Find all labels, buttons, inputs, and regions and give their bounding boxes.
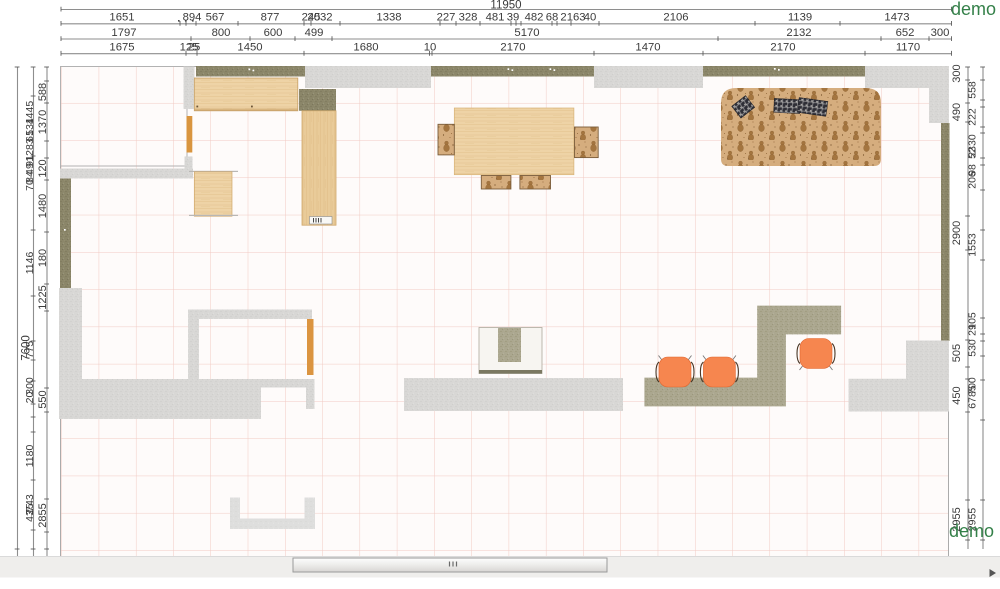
svg-text:52: 52	[967, 147, 979, 159]
svg-text:2106: 2106	[663, 12, 688, 24]
svg-text:2170: 2170	[770, 41, 795, 53]
svg-text:2132: 2132	[786, 27, 811, 39]
svg-text:29: 29	[967, 324, 979, 336]
svg-text:1473: 1473	[884, 12, 909, 24]
svg-text:1651: 1651	[109, 12, 134, 24]
svg-text:demo: demo	[951, 0, 996, 19]
svg-text:1225: 1225	[37, 285, 49, 309]
svg-text:894: 894	[183, 12, 202, 24]
svg-text:800: 800	[212, 27, 231, 39]
svg-text:1146: 1146	[24, 252, 36, 275]
svg-text:877: 877	[261, 12, 280, 24]
svg-text:180: 180	[37, 249, 49, 267]
svg-text:demo: demo	[949, 521, 994, 541]
svg-text:567: 567	[206, 12, 225, 24]
svg-text:1470: 1470	[635, 41, 660, 53]
svg-text:558: 558	[967, 81, 979, 99]
svg-text:2855: 2855	[37, 503, 49, 527]
svg-text:1170: 1170	[896, 41, 920, 53]
svg-text:20: 20	[24, 392, 36, 404]
svg-text:1675: 1675	[109, 41, 134, 53]
svg-text:499: 499	[305, 27, 324, 39]
svg-text:40: 40	[584, 12, 597, 24]
svg-text:490: 490	[951, 103, 963, 121]
svg-text:300: 300	[951, 64, 963, 82]
svg-text:227: 227	[437, 12, 456, 24]
svg-text:11950: 11950	[490, 0, 521, 12]
svg-text:10: 10	[424, 41, 437, 53]
svg-text:1338: 1338	[376, 12, 401, 24]
svg-text:1450: 1450	[237, 41, 262, 53]
svg-text:652: 652	[896, 27, 915, 39]
svg-text:2032: 2032	[307, 12, 332, 24]
svg-text:482: 482	[525, 12, 544, 24]
svg-text:120: 120	[37, 159, 49, 177]
svg-text:1797: 1797	[111, 27, 136, 39]
svg-text:2900: 2900	[951, 221, 963, 245]
svg-text:1480: 1480	[37, 194, 49, 218]
svg-text:1553: 1553	[967, 233, 979, 257]
svg-text:6785: 6785	[967, 385, 979, 409]
svg-text:300: 300	[931, 27, 950, 39]
svg-text:600: 600	[264, 27, 283, 39]
svg-text:481: 481	[486, 12, 505, 24]
svg-text:550: 550	[37, 390, 49, 408]
svg-text:450: 450	[951, 386, 963, 404]
svg-text:70: 70	[24, 179, 36, 191]
svg-text:530: 530	[967, 339, 979, 357]
svg-text:2163: 2163	[560, 12, 585, 24]
svg-text:328: 328	[459, 12, 478, 24]
svg-text:68: 68	[546, 12, 559, 24]
svg-text:222: 222	[967, 108, 979, 126]
svg-text:505: 505	[951, 344, 963, 362]
svg-text:39: 39	[507, 12, 520, 24]
svg-text:2170: 2170	[500, 41, 525, 53]
svg-text:775: 775	[24, 341, 36, 359]
svg-text:1180: 1180	[24, 445, 36, 468]
svg-text:1370: 1370	[37, 110, 49, 134]
svg-text:1139: 1139	[788, 12, 812, 24]
svg-text:43: 43	[24, 510, 36, 522]
svg-text:588: 588	[37, 83, 49, 101]
svg-text:5170: 5170	[514, 27, 539, 39]
svg-text:206: 206	[967, 171, 979, 189]
svg-text:25: 25	[188, 41, 201, 53]
svg-text:1680: 1680	[353, 41, 378, 53]
